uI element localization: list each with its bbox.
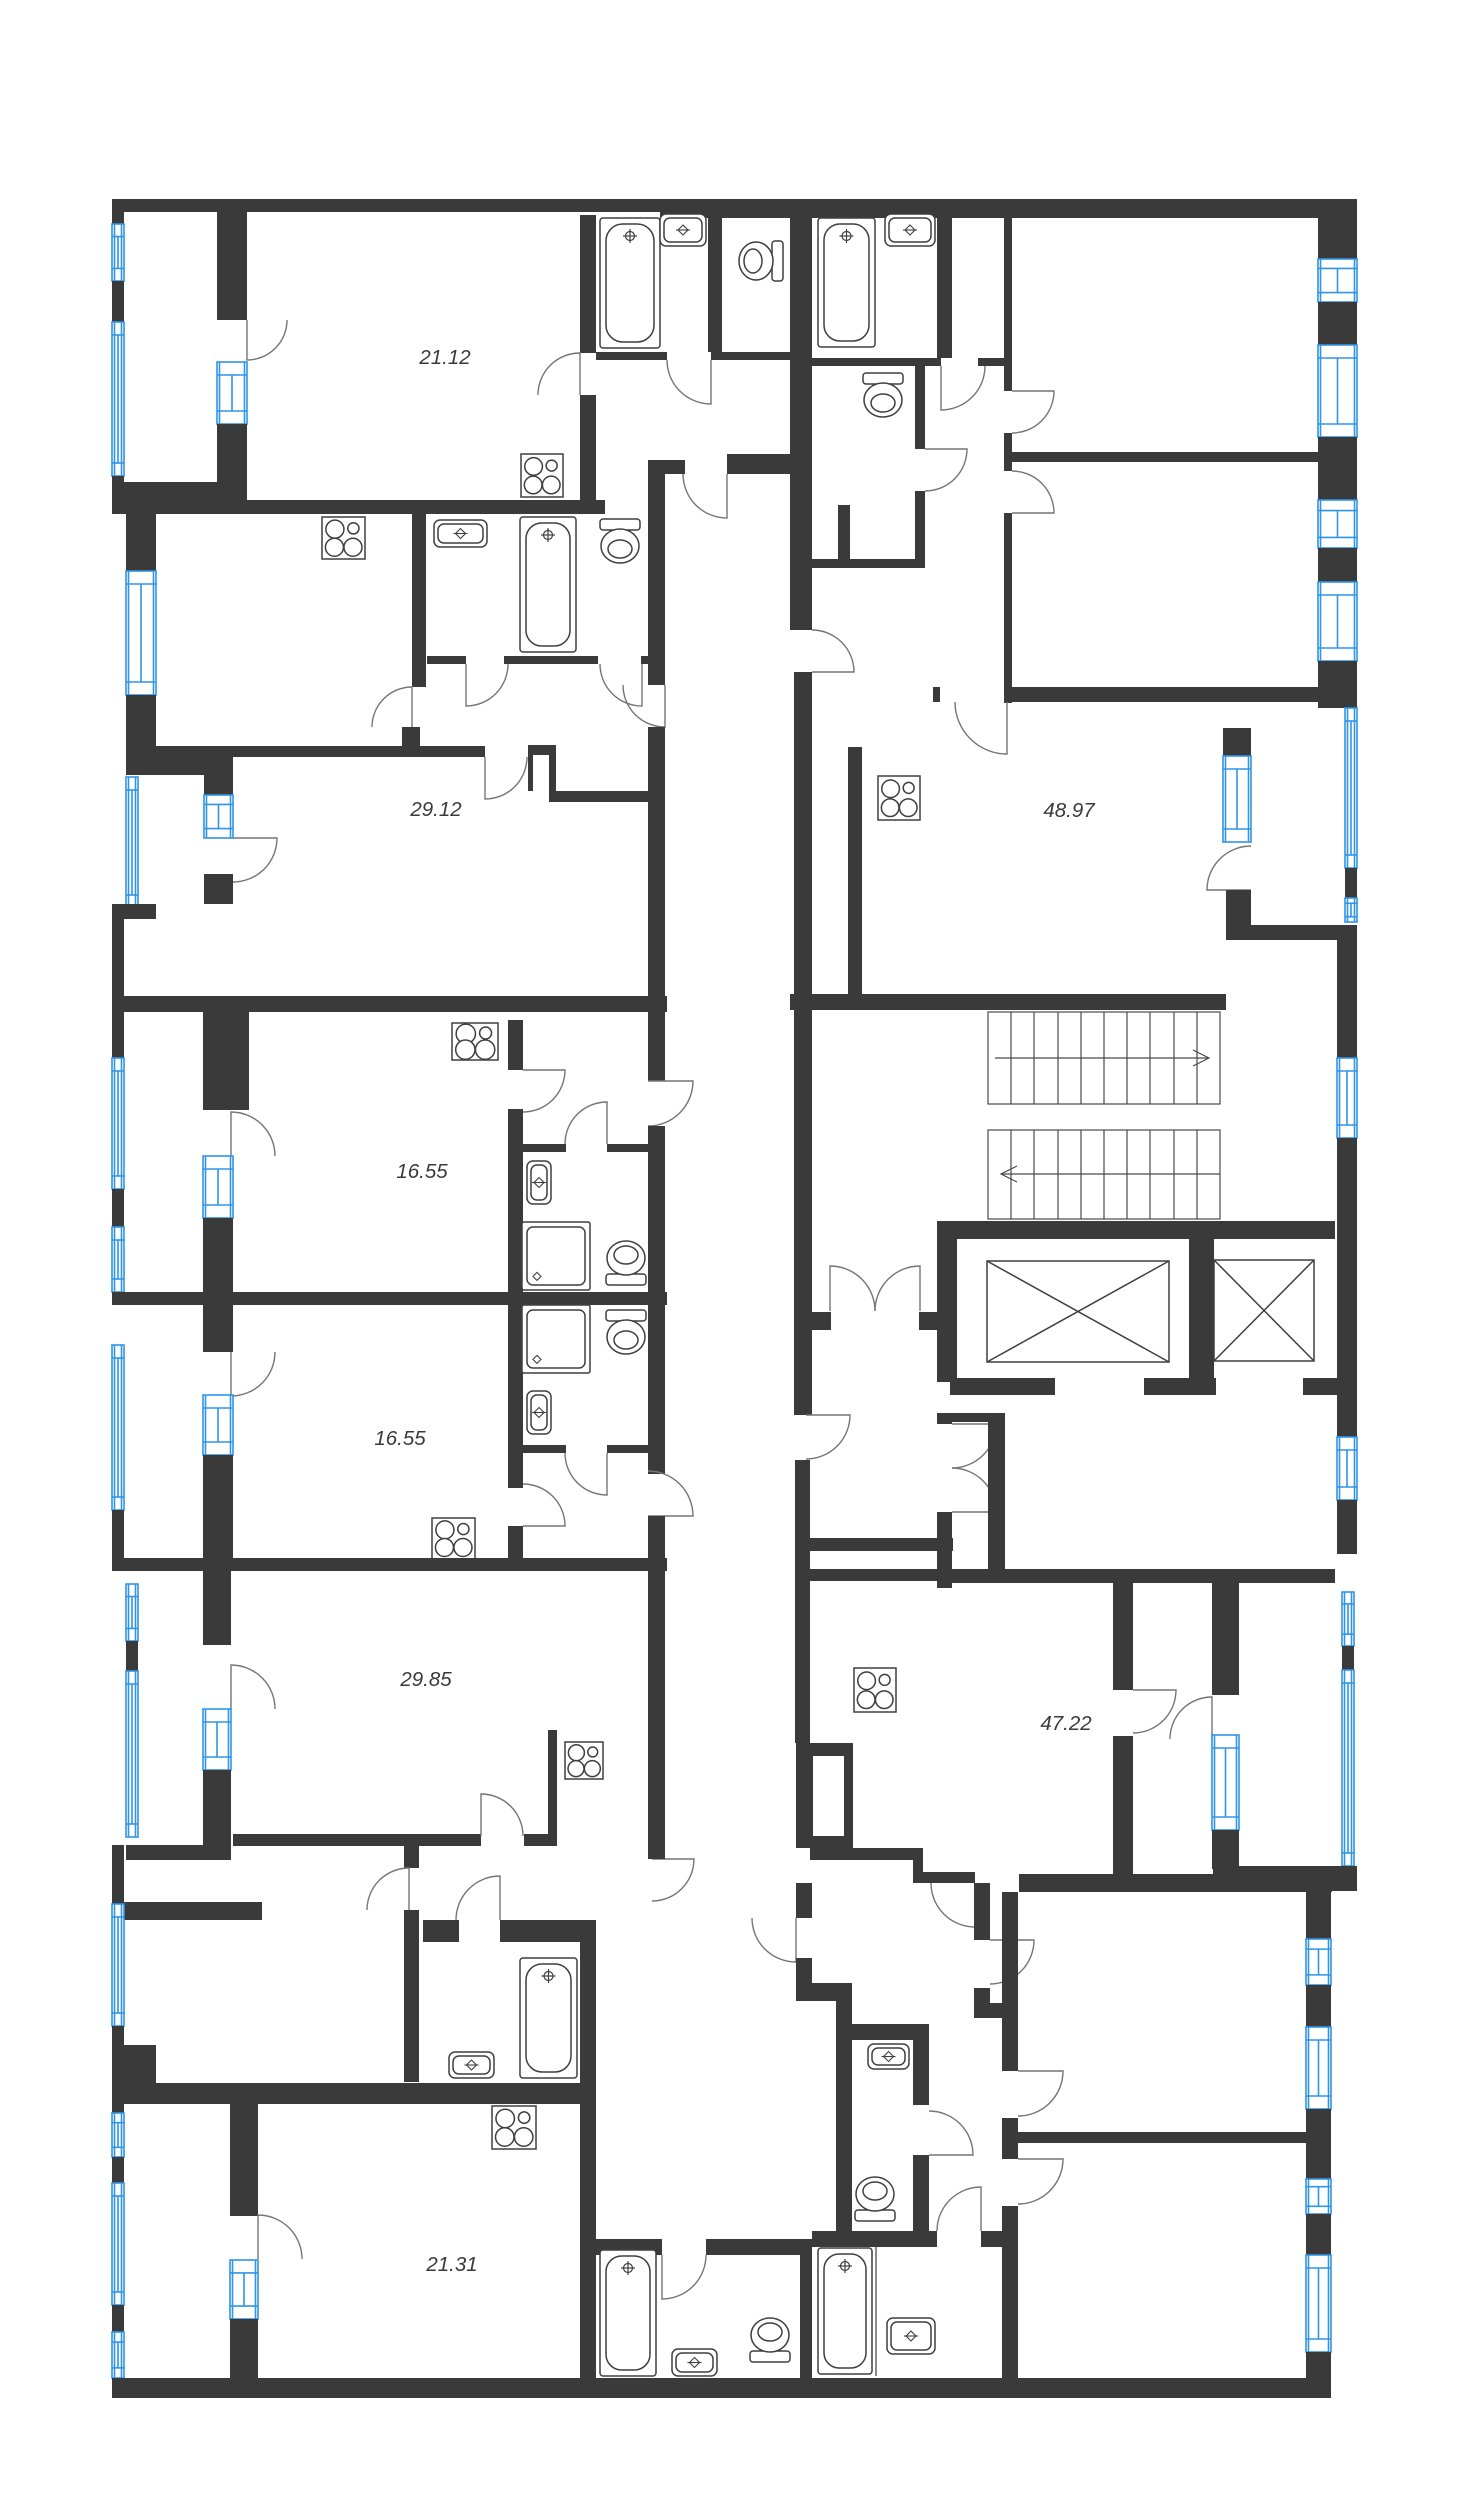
svg-text:16.55: 16.55 (374, 1427, 426, 1450)
svg-text:47.22: 47.22 (1040, 1712, 1092, 1735)
svg-text:16.55: 16.55 (396, 1160, 448, 1183)
svg-text:29.12: 29.12 (409, 798, 462, 821)
svg-text:21.12: 21.12 (418, 346, 471, 369)
svg-text:21.31: 21.31 (425, 2253, 477, 2276)
svg-text:29.85: 29.85 (399, 1668, 452, 1691)
svg-text:48.97: 48.97 (1043, 799, 1096, 822)
